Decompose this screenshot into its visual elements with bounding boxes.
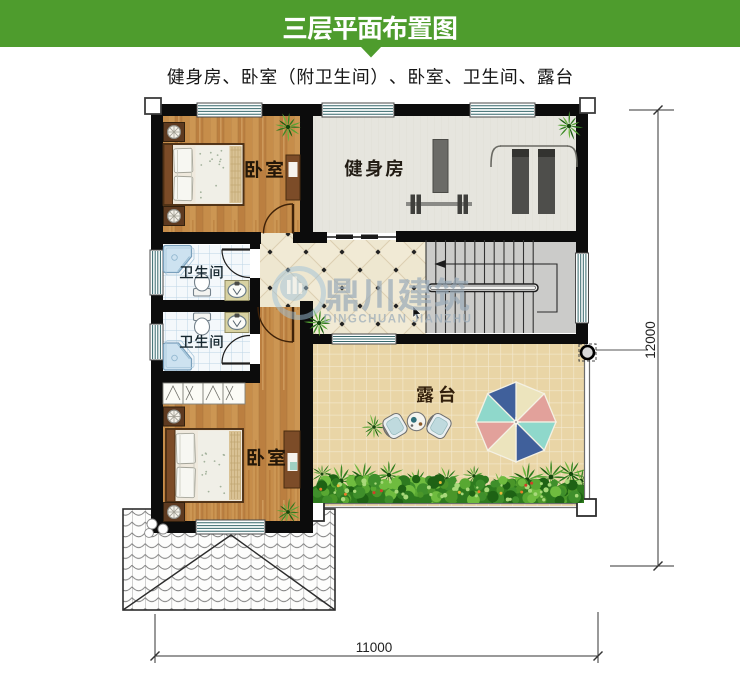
- svg-text:DINGCHUAN JIANZHU: DINGCHUAN JIANZHU: [324, 314, 473, 326]
- svg-text:11000: 11000: [356, 640, 393, 655]
- svg-text:12000: 12000: [643, 321, 658, 359]
